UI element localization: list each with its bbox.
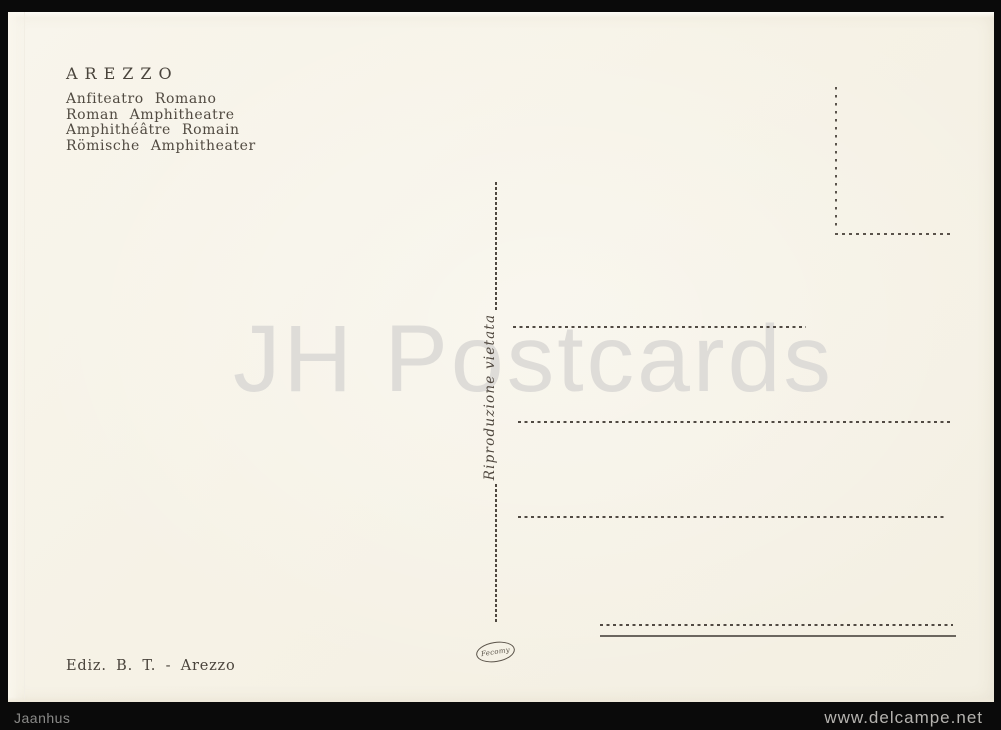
footer-bar: Jaanhus www.delcampe.net: [0, 702, 1001, 730]
address-line-2: [518, 421, 950, 423]
postcard-left-edge: [8, 12, 25, 702]
reproduction-notice: Riproduzione vietata: [482, 307, 498, 487]
card-title: AREZZO: [66, 64, 256, 83]
address-line-4-rule: [600, 635, 956, 637]
caption-block: AREZZO Anfiteatro Romano Roman Amphithea…: [66, 64, 256, 154]
publisher-credit: Ediz. B. T. - Arezzo: [66, 658, 236, 674]
seller-name: Jaanhus: [14, 710, 70, 726]
divider-line-upper: [495, 182, 497, 312]
address-line-3: [518, 516, 945, 518]
printer-oval-logo: Fecomy: [475, 639, 517, 665]
page-background: { "scene": { "background_color": "#0a0a0…: [0, 0, 1001, 730]
card-subtitle-german: Römische Amphitheater: [66, 139, 256, 155]
card-subtitle-french: Amphithéâtre Romain: [66, 123, 256, 139]
card-subtitle-english: Roman Amphitheatre: [66, 108, 256, 124]
address-line-4: [600, 624, 953, 626]
card-subtitle-italian: Anfiteatro Romano: [66, 92, 256, 108]
postcard-back: JH Postcards AREZZO Anfiteatro Romano Ro…: [8, 12, 994, 702]
stamp-box-left-edge: [835, 87, 837, 230]
address-line-1: [513, 326, 806, 328]
stamp-box-bottom-edge: [835, 233, 953, 235]
site-url: www.delcampe.net: [824, 708, 983, 728]
divider-line-lower: [495, 484, 497, 622]
postcard-top-edge: [8, 12, 994, 18]
